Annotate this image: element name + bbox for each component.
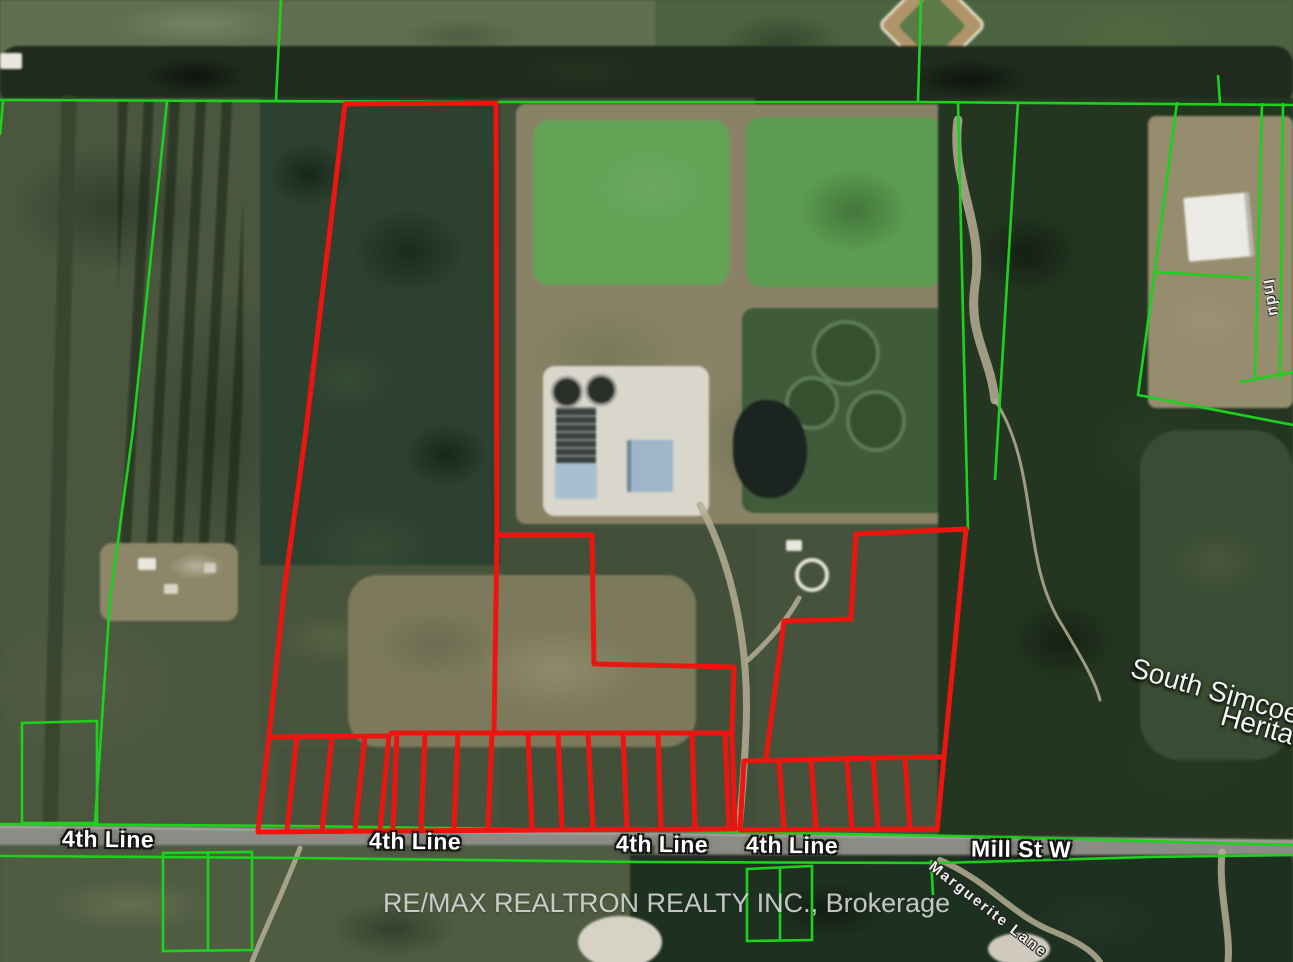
parcel-boundary-overlay: [0, 0, 1293, 962]
green-boundary: [918, 0, 921, 101]
road-label-4th-line-3: 4th Line: [616, 831, 708, 859]
red-lot-line: [488, 733, 492, 830]
red-parcel2-lots-top: [744, 757, 944, 761]
red-lot-line: [811, 759, 816, 829]
red-lot-line: [380, 736, 389, 831]
red-lot-line: [588, 733, 593, 829]
red-lot-line: [658, 733, 661, 829]
red-lot-line: [779, 760, 784, 829]
road-label-4th-line-4: 4th Line: [746, 832, 838, 860]
red-lot-line: [873, 758, 878, 829]
red-parcel1-outline-west: [269, 104, 345, 737]
brokerage-watermark: RE/MAX REALTRON REALTY INC., Brokerage: [383, 888, 913, 919]
red-lot-line: [322, 736, 332, 831]
green-boundary: [1240, 372, 1293, 382]
red-lot-line: [454, 733, 458, 830]
red-lot-line: [528, 733, 532, 829]
green-boundary: [276, 0, 281, 100]
red-lot-line: [905, 758, 910, 829]
green-boundary-road-corridor: [1255, 103, 1262, 380]
road-label-4th-line-2: 4th Line: [369, 828, 461, 856]
green-boundary: [0, 101, 3, 135]
red-lot-line: [725, 733, 729, 828]
red-lot-line: [258, 737, 269, 831]
marguerite-lane-road: [940, 860, 1100, 962]
green-boundary-west: [95, 101, 167, 823]
red-parcel2-lots-bottom: [740, 829, 937, 830]
house-driveway: [748, 598, 799, 660]
red-lot-line: [847, 759, 852, 829]
green-parcel-boundaries: [0, 0, 1293, 951]
red-property-boundaries: [258, 103, 966, 832]
green-boundary-road-corridor: [1280, 103, 1283, 380]
red-lot-line: [393, 733, 397, 830]
aerial-parcel-map: 4th Line 4th Line 4th Line 4th Line Mill…: [0, 0, 1293, 962]
red-lot-line: [421, 733, 425, 830]
road-label-mill-st-w: Mill St W: [971, 835, 1072, 863]
red-lot-line: [692, 733, 695, 829]
road-label-4th-line-1: 4th Line: [62, 826, 154, 854]
red-parcel2-outline-west: [766, 534, 856, 759]
trail-east: [995, 400, 1100, 700]
red-parcel1-inner-division: [494, 535, 497, 733]
side-road-southeast: [1221, 852, 1228, 962]
red-lot-line: [355, 736, 365, 831]
green-boundary-north: [0, 100, 1293, 105]
red-lot-line: [558, 733, 562, 829]
red-lots-top-west: [269, 736, 389, 737]
green-boundary-northeast: [1155, 272, 1252, 278]
farm-lane-south: [252, 848, 300, 962]
green-parcel-west: [22, 721, 97, 823]
green-road-edge-north-east: [640, 830, 1293, 845]
red-lot-line: [623, 733, 627, 829]
red-parcel1-outline-east: [345, 103, 735, 828]
green-boundary: [1218, 75, 1220, 103]
red-lot-line: [287, 736, 297, 831]
